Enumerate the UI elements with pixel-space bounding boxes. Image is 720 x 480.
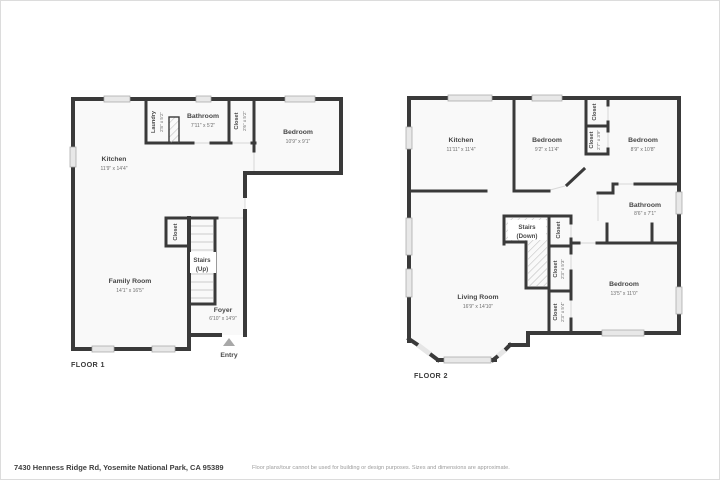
f2-bedroom-mid-name: Bedroom	[532, 137, 562, 144]
f2-closet-small-dims: 2'7" x 3'9"	[596, 130, 601, 150]
f2-bathroom-name: Bathroom	[629, 202, 661, 209]
f2-bedroom-right-name: Bedroom	[628, 137, 658, 144]
f2-closet-hall-mid-dims: 2'3" x 5'3"	[560, 259, 565, 279]
floor1-title: FLOOR 1	[71, 360, 105, 369]
f1-kitchen-dims: 11'9" x 14'4"	[100, 166, 127, 172]
floor1-plan: Kitchen 11'9" x 14'4" Laundry 2'8" x 5'2…	[70, 96, 341, 369]
f1-foyer-dims: 6'10" x 14'9"	[209, 316, 237, 322]
f2-closet-hall-top-name: Closet	[556, 221, 562, 238]
f1-family-room-dims: 14'1" x 16'5"	[116, 288, 144, 294]
f2-kitchen-dims: 11'11" x 11'4"	[446, 147, 475, 153]
f1-kitchen-name: Kitchen	[102, 156, 127, 163]
f2-bathroom-dims: 8'6" x 7'1"	[634, 211, 656, 217]
floor1-hatched-wall	[169, 117, 179, 143]
f2-closet-small-name: Closet	[589, 131, 595, 148]
f2-closet-hall-bot-dims: 2'3" x 5'4"	[560, 302, 565, 322]
f1-stairs-line2: (Up)	[196, 266, 208, 273]
f2-living-room-name: Living Room	[457, 294, 498, 301]
property-address: 7430 Henness Ridge Rd, Yosemite National…	[14, 463, 224, 472]
f1-laundry-dims: 2'8" x 5'2"	[159, 112, 164, 132]
floor2-plan: Kitchen 11'11" x 11'4" Bedroom 9'2" x 11…	[406, 95, 682, 380]
f2-bedroom-right-dims: 8'9" x 10'8"	[631, 147, 656, 153]
f2-stairs-line1: Stairs	[518, 224, 536, 231]
floorplan-drawing: Kitchen 11'9" x 14'4" Laundry 2'8" x 5'2…	[1, 1, 720, 480]
floor2-title: FLOOR 2	[414, 371, 448, 380]
floor1-footprint	[73, 99, 341, 349]
f1-stairs-line1: Stairs	[193, 257, 211, 264]
f1-closet-stairs-name: Closet	[173, 223, 179, 240]
floorplan-page: Kitchen 11'9" x 14'4" Laundry 2'8" x 5'2…	[0, 0, 720, 480]
f1-family-room-name: Family Room	[109, 278, 152, 285]
disclaimer-text: Floor plans/tour cannot be used for buil…	[252, 465, 510, 471]
f1-entry-label: Entry	[220, 352, 238, 359]
f2-closet-hall-bot-name: Closet	[553, 303, 559, 320]
f2-bedroom-mid-dims: 9'2" x 11'4"	[535, 147, 559, 153]
f1-bathroom-name: Bathroom	[187, 113, 219, 120]
entry-arrow-icon	[223, 338, 235, 346]
f1-closet-hall-dims: 2'6" x 5'2"	[242, 111, 247, 131]
f2-closet-top-name: Closet	[592, 103, 598, 120]
f2-closet-hall-mid-name: Closet	[553, 260, 559, 277]
f2-stairs-line2: (Down)	[517, 233, 538, 240]
f2-bedroom-bottom-name: Bedroom	[609, 281, 639, 288]
f2-kitchen-name: Kitchen	[449, 137, 474, 144]
f1-bedroom-name: Bedroom	[283, 129, 313, 136]
f1-bedroom-dims: 10'9" x 9'1"	[286, 139, 311, 145]
f2-bedroom-bottom-dims: 13'5" x 11'0"	[610, 291, 637, 297]
f1-bathroom-dims: 7'11" x 5'2"	[191, 123, 215, 129]
f1-closet-hall-name: Closet	[234, 112, 240, 129]
f2-living-room-dims: 16'9" x 14'10"	[463, 304, 493, 310]
f1-laundry-name: Laundry	[151, 110, 157, 133]
f1-foyer-name: Foyer	[214, 307, 233, 314]
